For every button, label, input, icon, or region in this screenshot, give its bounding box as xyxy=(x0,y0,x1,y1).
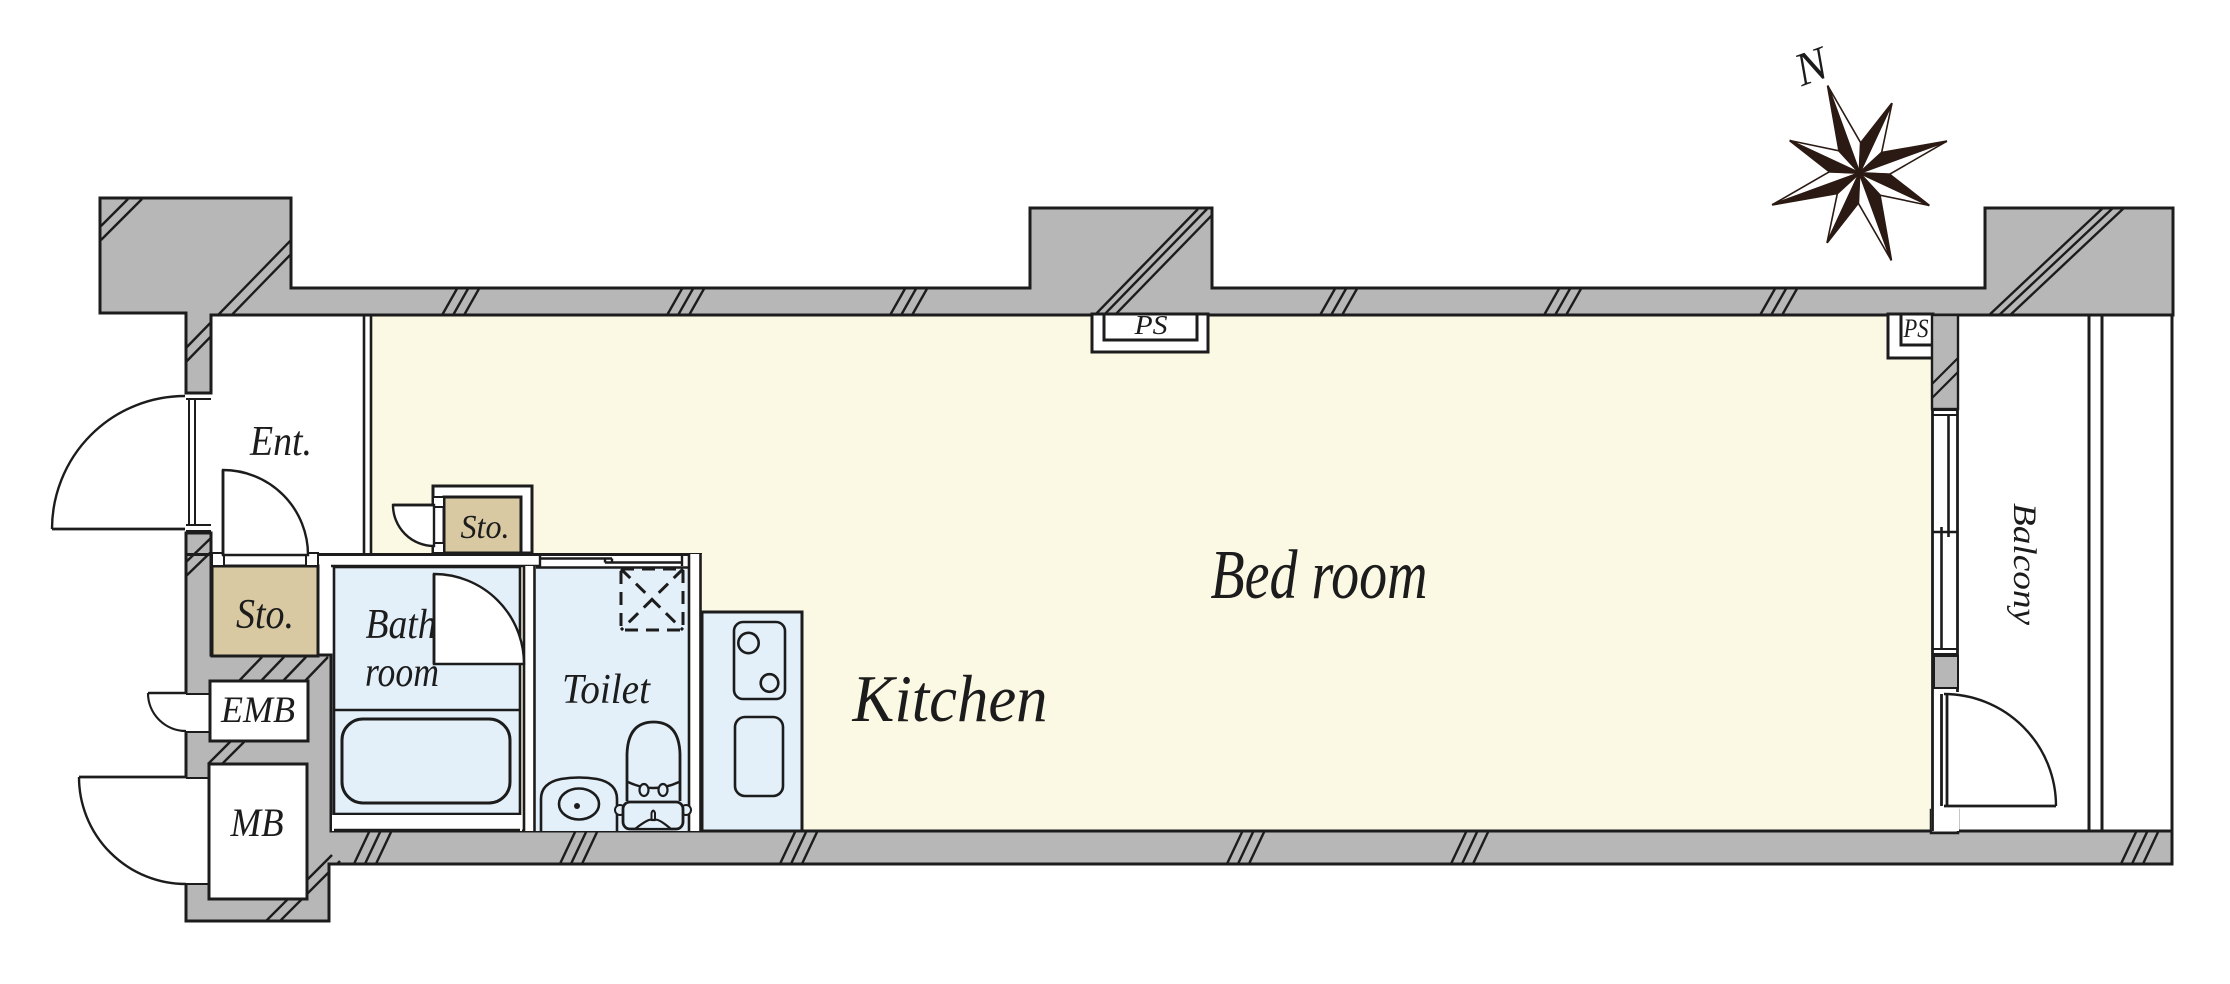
svg-text:Sto.: Sto. xyxy=(461,509,510,546)
svg-text:room: room xyxy=(365,650,439,696)
svg-text:Sto.: Sto. xyxy=(236,592,294,638)
svg-text:PS: PS xyxy=(1133,310,1168,340)
svg-text:Ent.: Ent. xyxy=(249,419,312,465)
svg-text:Toilet: Toilet xyxy=(562,667,651,713)
svg-text:Bath: Bath xyxy=(366,602,437,648)
svg-text:Balcony: Balcony xyxy=(2006,503,2042,625)
svg-text:Kitchen: Kitchen xyxy=(852,662,1048,736)
svg-text:PS: PS xyxy=(1903,314,1929,343)
svg-text:EMB: EMB xyxy=(220,690,295,731)
svg-text:Bed room: Bed room xyxy=(1211,537,1428,614)
svg-text:MB: MB xyxy=(230,800,284,845)
